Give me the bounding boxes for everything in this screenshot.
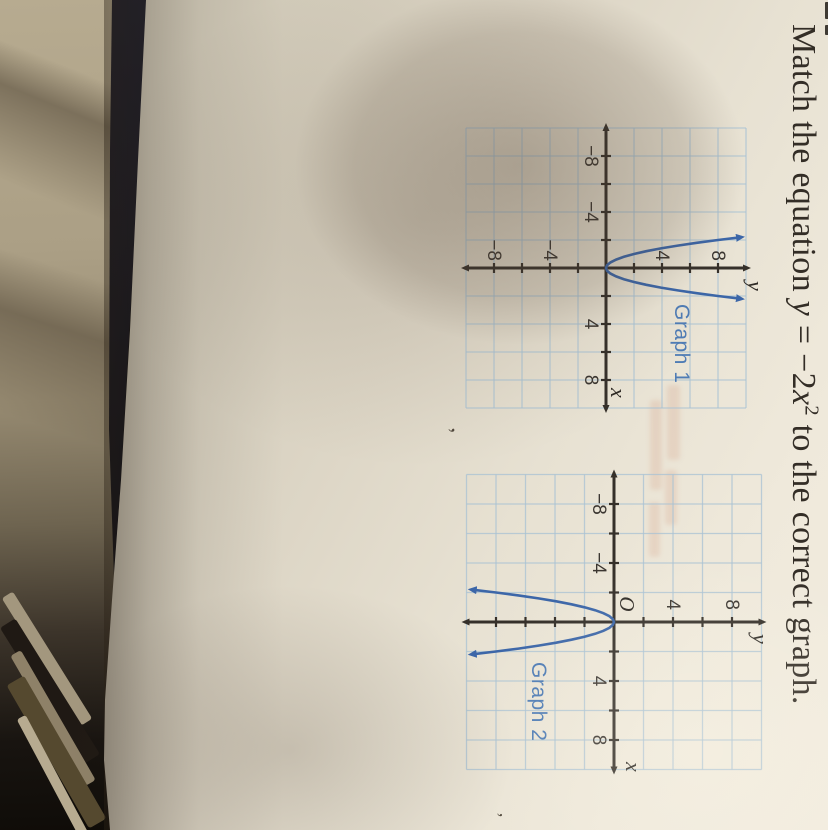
x-tick-label: 4	[588, 676, 609, 687]
title-text-pre: Match the equation	[785, 24, 822, 301]
y-tick-label: 8	[721, 599, 742, 610]
graph-1-plot: −8 −4 4 8 8 4 −4 −8 y x Graph 1	[446, 98, 776, 438]
x-axis-label: x	[606, 387, 631, 398]
y-tick-label: 4	[662, 599, 683, 610]
y-axis-label: y	[743, 279, 768, 291]
title-equals-coef: = −2	[785, 316, 822, 390]
graph-1-figure: −8 −4 4 8 8 4 −4 −8 y x Graph 1	[441, 98, 776, 438]
title-var-x: x	[785, 390, 822, 405]
graph-2-plot: −8 −4 4 8 8 4 O y x Graph 2	[454, 452, 784, 792]
y-axis-label: y	[748, 632, 773, 644]
x-axis-label: x	[621, 761, 646, 772]
x-tick-label: −4	[588, 552, 609, 574]
x-tick-label: 4	[580, 319, 601, 330]
title-exponent: 2	[800, 405, 822, 416]
x-tick-label: −4	[580, 201, 601, 223]
graph-2-caption: Graph 2	[527, 662, 550, 741]
x-tick-label: −8	[588, 493, 609, 515]
y-tick-label: −4	[539, 239, 560, 261]
graph-2-figure: −8 −4 4 8 8 4 O y x Graph 2	[449, 452, 784, 792]
x-tick-label: 8	[580, 375, 601, 386]
y-tick-label: 4	[651, 250, 672, 261]
origin-label: O	[615, 596, 639, 611]
title-text-post: to the correct graph.	[785, 416, 822, 705]
y-tick-label: −8	[483, 239, 504, 261]
textbook-photo: Match the equation y = −2x2 to the corre…	[0, 0, 828, 830]
x-tick-label: 8	[588, 735, 609, 746]
graph-1-caption: Graph 1	[670, 304, 693, 383]
problem-title: Match the equation y = −2x2 to the corre…	[784, 24, 822, 784]
stray-pen-mark: ‚	[495, 812, 516, 818]
x-tick-label: −8	[580, 145, 601, 167]
title-var-y: y	[785, 301, 822, 316]
y-tick-label: 8	[707, 250, 728, 261]
page-content-rotated: Match the equation y = −2x2 to the corre…	[0, 0, 828, 830]
